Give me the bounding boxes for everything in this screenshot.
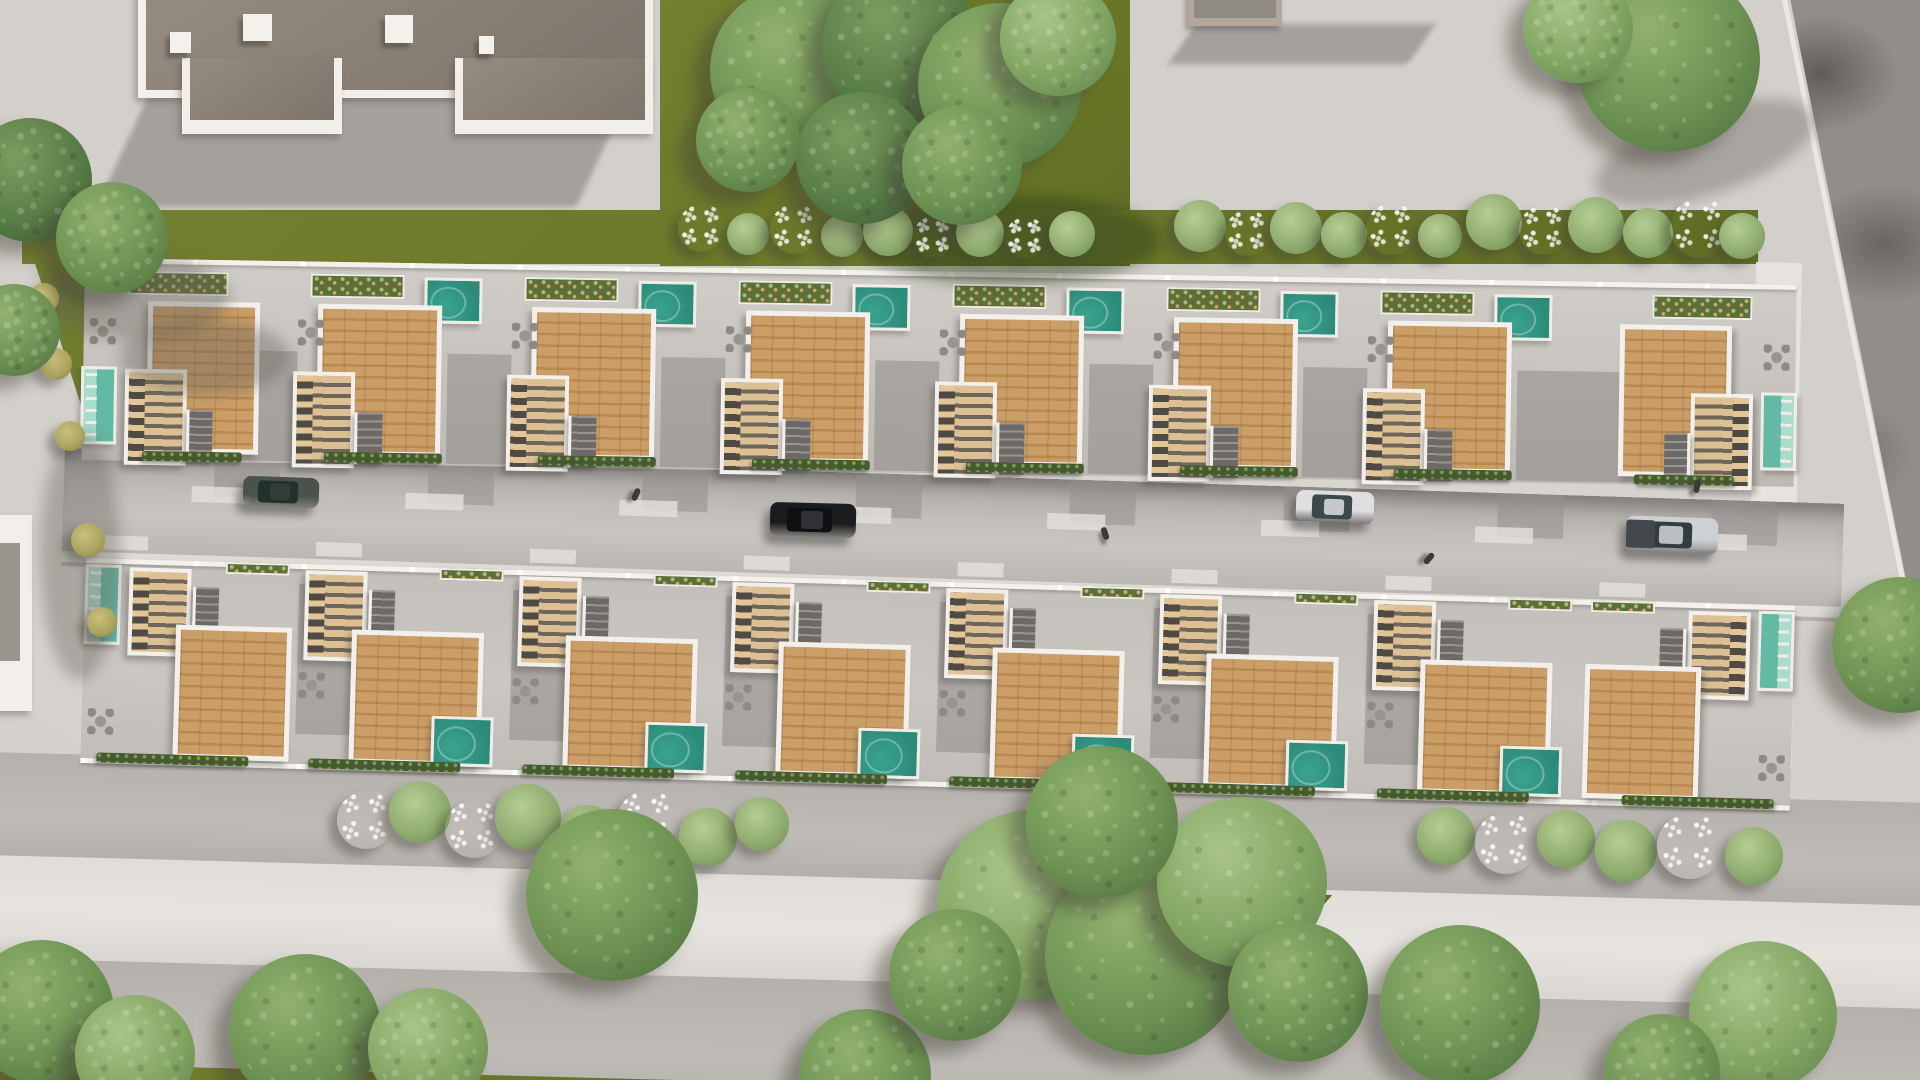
- tree-canopy: [1832, 577, 1920, 713]
- tree-canopy: [368, 988, 488, 1080]
- tree-canopy: [1380, 925, 1540, 1080]
- aerial-render-scene: [0, 0, 1920, 1080]
- tree-canopy: [526, 809, 698, 981]
- tree-canopy: [889, 909, 1021, 1041]
- tree-canopy: [0, 284, 60, 376]
- tree-canopy: [696, 88, 800, 192]
- tree-canopy: [902, 105, 1022, 225]
- tree-canopy: [1228, 922, 1368, 1062]
- trees-layer: [0, 0, 1920, 1080]
- tree-canopy: [1026, 746, 1178, 898]
- tree-canopy: [229, 954, 381, 1080]
- tree-canopy: [56, 182, 168, 294]
